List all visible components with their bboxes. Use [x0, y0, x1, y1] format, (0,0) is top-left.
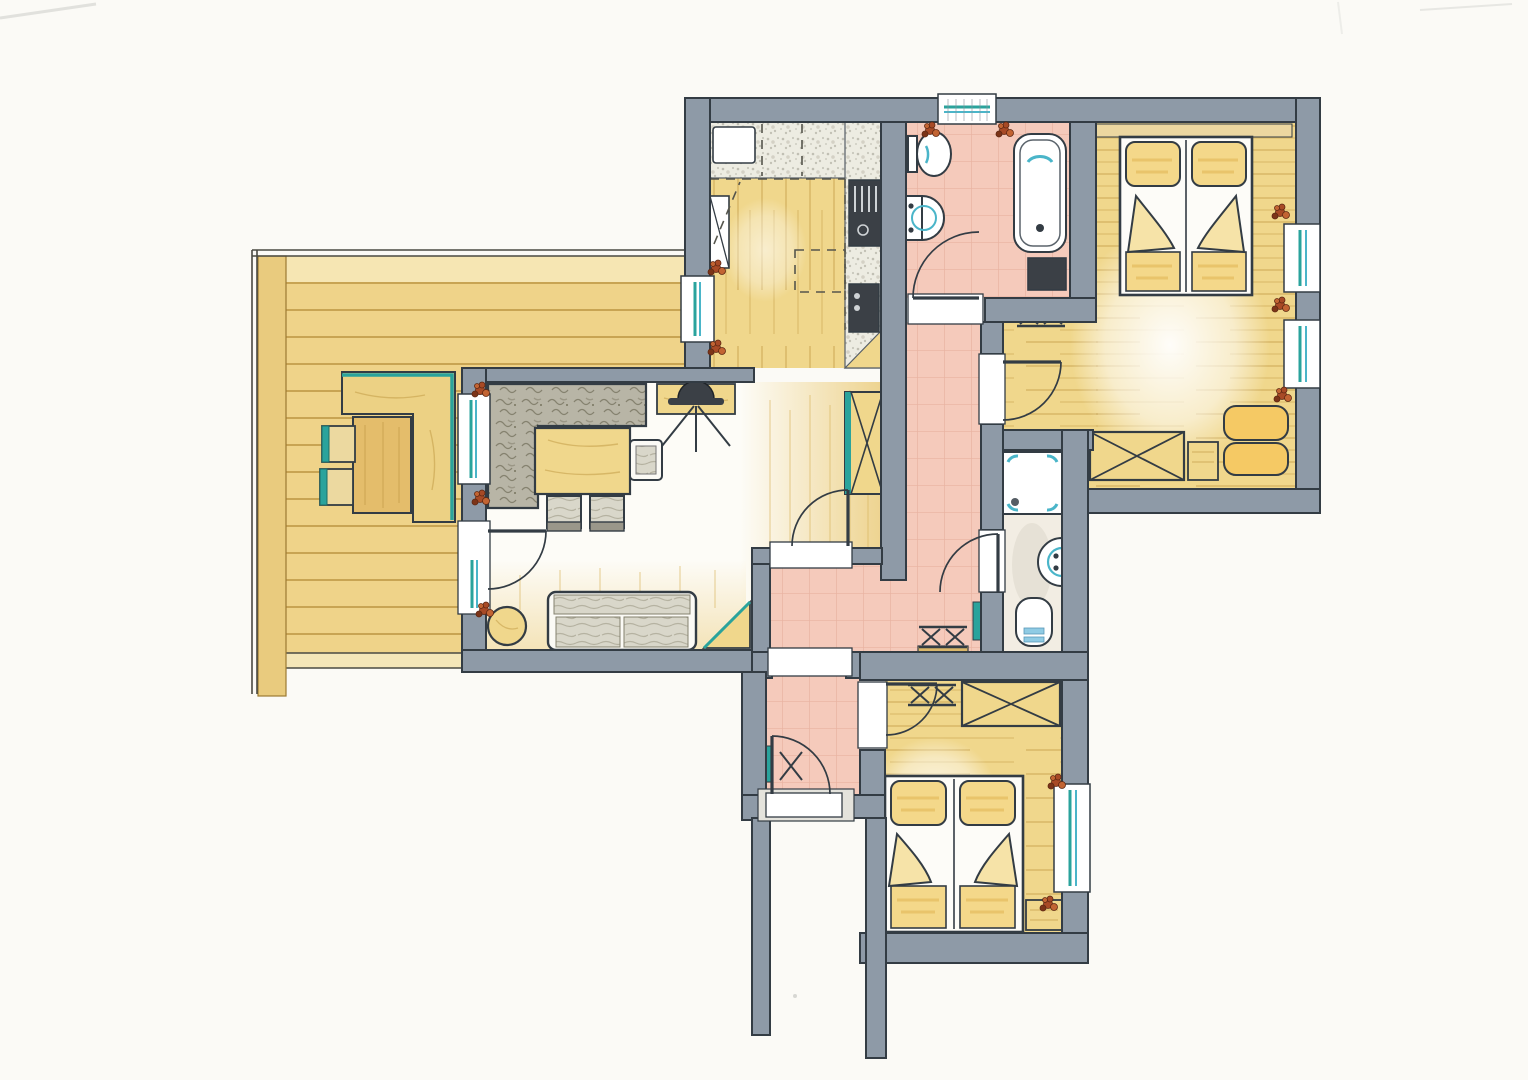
door-threshold	[858, 682, 887, 748]
terrace-border-plank	[258, 256, 286, 696]
bathtub	[1014, 134, 1066, 252]
wall-segment	[981, 322, 1003, 354]
dining-chair	[547, 496, 581, 531]
pillow	[1192, 142, 1246, 186]
door-threshold	[768, 648, 852, 676]
pillow	[891, 781, 946, 825]
fridge	[710, 196, 729, 268]
wall-segment	[860, 652, 1088, 680]
wall-segment	[752, 818, 770, 1035]
pillow	[1126, 142, 1180, 186]
dining-table	[535, 428, 630, 494]
kitchen-sink	[713, 127, 755, 163]
window	[1284, 224, 1320, 292]
wall-segment	[985, 298, 1096, 322]
wall-segment	[462, 650, 754, 672]
shower-tray	[1003, 452, 1062, 514]
cooktop	[849, 180, 881, 246]
dining-chair	[630, 440, 662, 480]
door-threshold	[458, 521, 490, 614]
window	[1284, 320, 1320, 388]
terrace-table	[353, 417, 411, 513]
door-threshold	[770, 542, 852, 568]
window	[458, 394, 490, 484]
wall-shelf	[1078, 124, 1292, 137]
window	[938, 94, 996, 124]
wall-segment	[860, 750, 885, 795]
bench-cushions	[1224, 406, 1288, 475]
pillow	[960, 781, 1015, 825]
wall-segment	[685, 98, 1320, 122]
wall-segment	[866, 818, 886, 1058]
wall-segment	[752, 548, 772, 564]
wall-segment	[850, 548, 882, 564]
wall-segment	[881, 122, 906, 580]
wall-segment	[1296, 98, 1320, 513]
floor-plan-page	[0, 0, 1528, 1080]
entry-vestibule	[766, 672, 860, 795]
terrace-chair	[322, 426, 355, 462]
door-threshold	[979, 530, 1005, 592]
dining-chair	[590, 496, 624, 531]
window	[681, 276, 714, 342]
sofa	[548, 592, 696, 650]
wardrobe	[962, 682, 1060, 726]
wall-segment	[1070, 122, 1096, 322]
wardrobe	[1090, 432, 1184, 480]
oven	[849, 284, 879, 332]
wall-segment	[1085, 489, 1320, 513]
washbasin	[906, 196, 944, 240]
double-bed	[1120, 137, 1252, 295]
shower-toilet	[1016, 598, 1052, 646]
floor-plan-canvas	[0, 0, 1528, 1080]
washing-machine	[1028, 258, 1066, 290]
wall-segment	[462, 368, 754, 382]
door-threshold	[766, 793, 842, 817]
wall-segment	[860, 933, 1088, 963]
tall-cabinet	[845, 392, 883, 494]
window	[1054, 784, 1090, 892]
terrace-chair	[320, 469, 353, 505]
wall-segment	[981, 424, 1003, 530]
wall-segment	[981, 592, 1003, 652]
dresser	[1188, 442, 1218, 480]
toilet	[908, 132, 951, 176]
double-bed	[885, 776, 1023, 932]
door-threshold	[979, 354, 1005, 424]
